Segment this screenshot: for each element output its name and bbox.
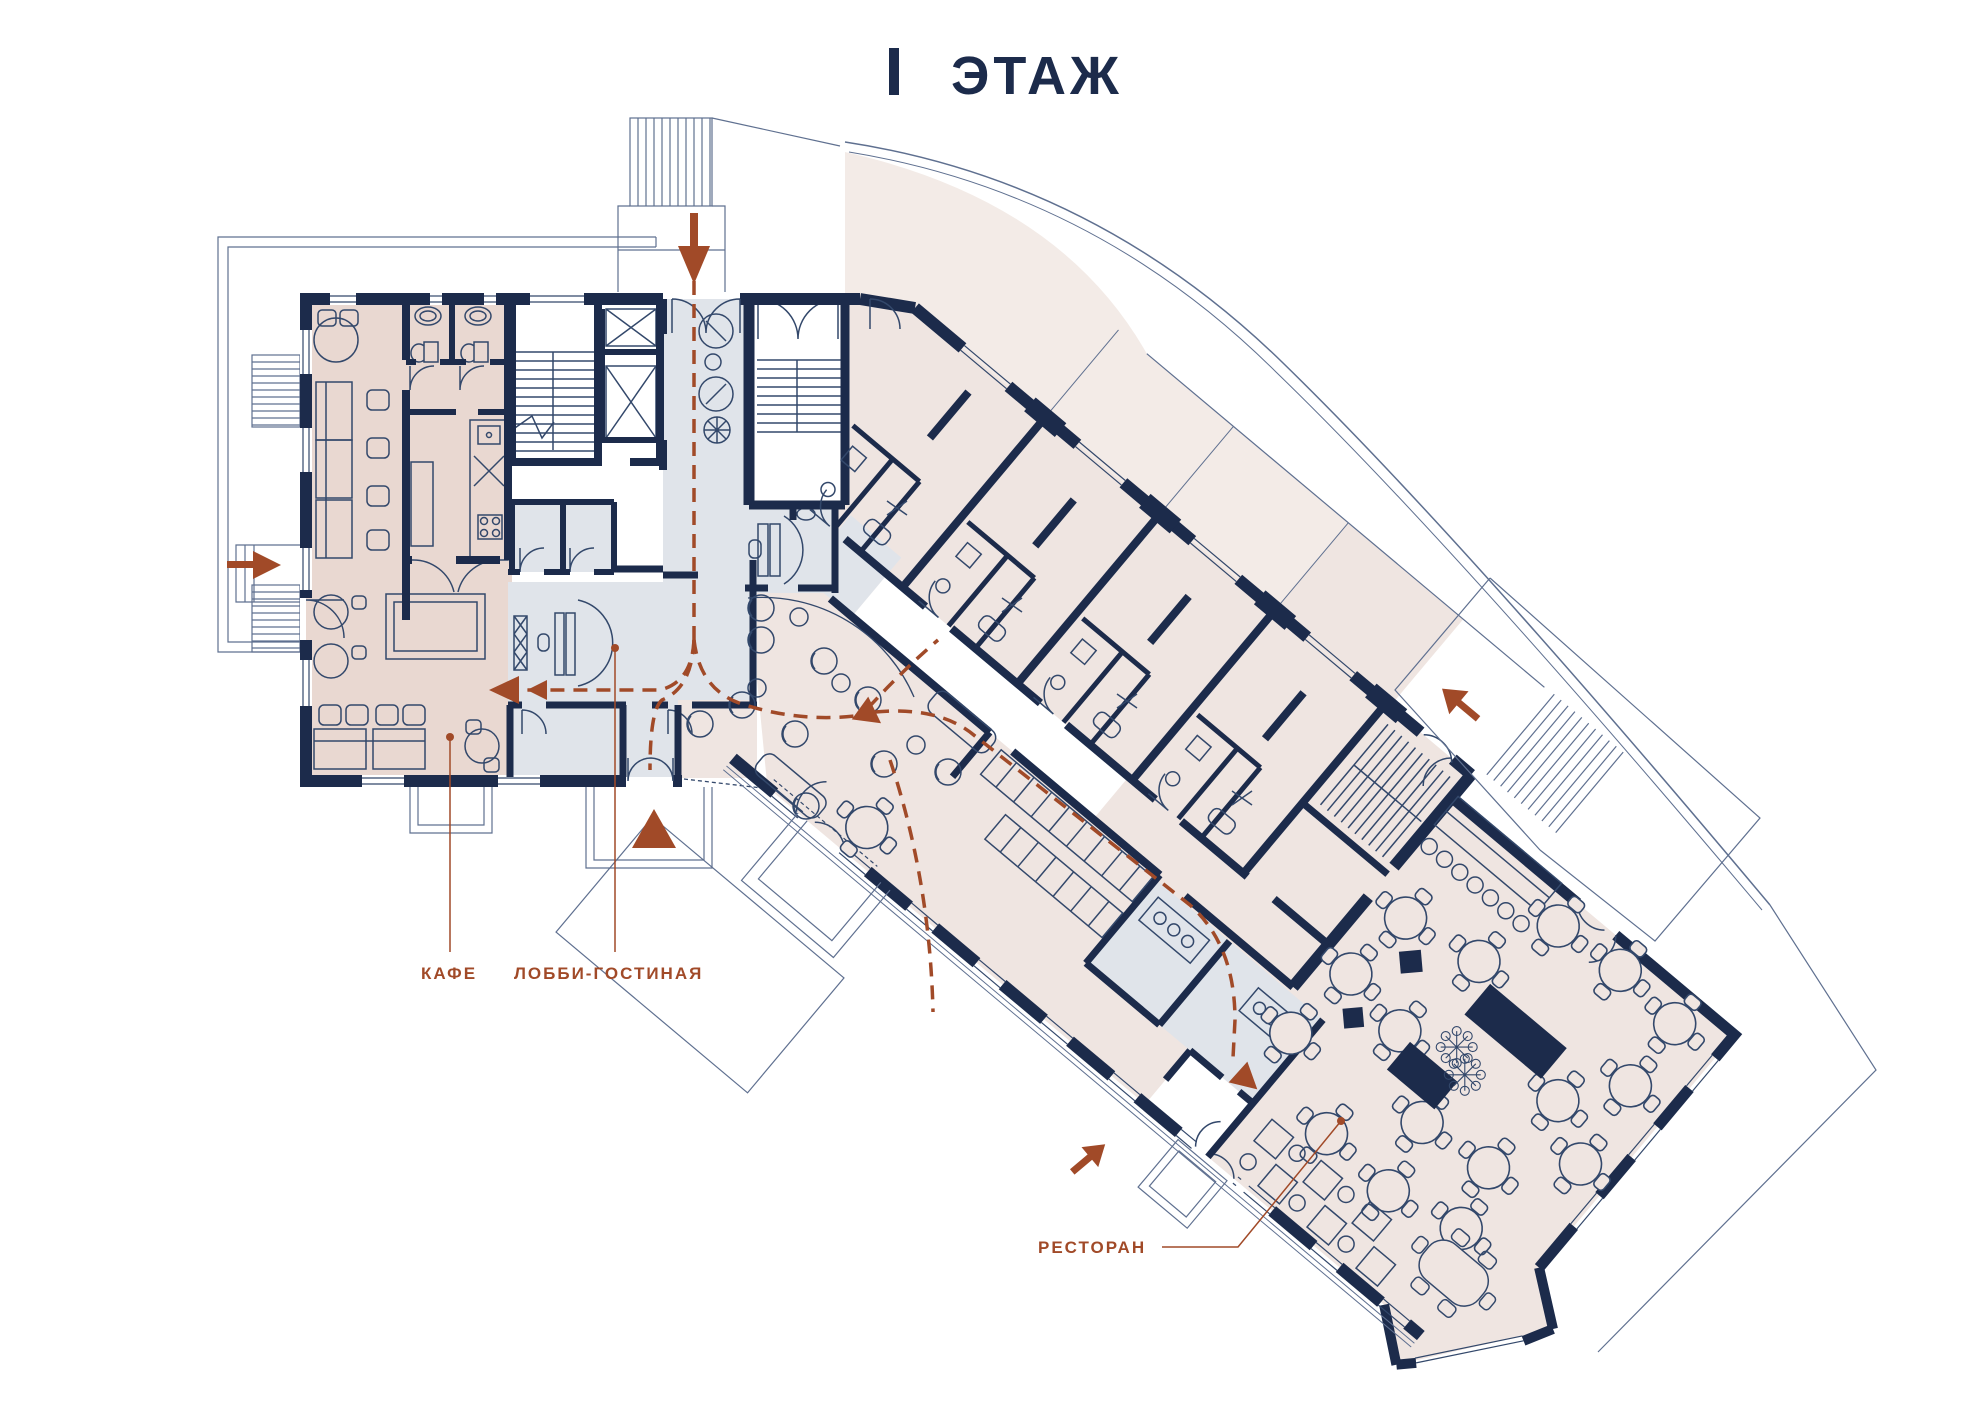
svg-text:КАФЕ: КАФЕ — [421, 964, 477, 983]
svg-text:ЛОББИ-ГОСТИНАЯ: ЛОББИ-ГОСТИНАЯ — [514, 964, 703, 983]
svg-text:РЕСТОРАН: РЕСТОРАН — [1038, 1238, 1146, 1257]
svg-text:ЭТАЖ: ЭТАЖ — [951, 46, 1123, 106]
